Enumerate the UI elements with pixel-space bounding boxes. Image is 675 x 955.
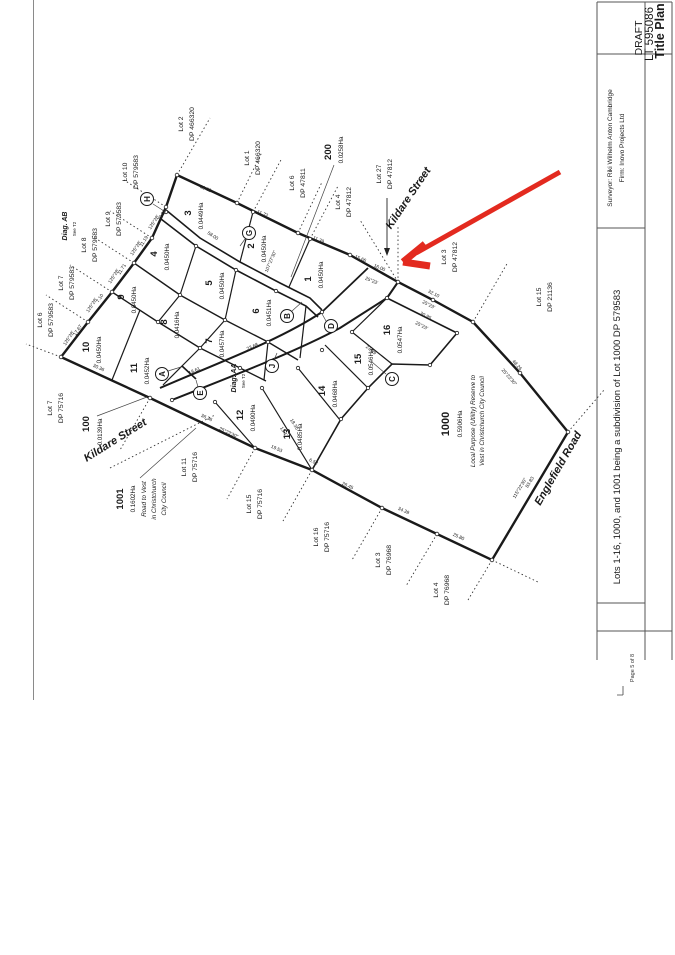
adjoining-dp: DP 75716: [58, 393, 65, 423]
lot-number: 3: [183, 210, 194, 215]
lot-number: 2: [246, 243, 257, 248]
dimension: 19.53: [270, 444, 284, 455]
adjoining-lot: Lot 8: [81, 237, 88, 252]
lot-area: 0.0450Ha: [261, 235, 268, 262]
adjoining-lot: Lot 4: [335, 194, 342, 209]
diag-ab-label: Diag. AB: [62, 212, 69, 241]
parcel-1001-desc: City Council: [161, 482, 168, 516]
adjoining-dp: DP 466320: [255, 141, 262, 175]
parcel-1000-number: 1000: [440, 412, 452, 436]
dimension: 58.00: [206, 230, 220, 242]
dimension: 13.62: [199, 184, 213, 194]
adjoining-lot: Lot 3: [441, 249, 448, 264]
plan-status: DRAFT: [633, 20, 645, 56]
parcel-1001-desc: in Christchurch: [151, 478, 158, 520]
dimension: 115°22'30": [512, 477, 529, 500]
parcel-1001-area: 0.1602Ha: [130, 485, 137, 512]
lot-area: 0.0416Ha: [174, 311, 181, 338]
title-plan-page: 3 0.0449Ha 2 0.0450Ha 1 0.0450Ha 4 0.045…: [0, 0, 675, 955]
lot-area: 0.0451Ha: [266, 299, 273, 326]
surveyor-firm: Firm: Inovo Projects Ltd: [619, 113, 626, 182]
peg-letter: H: [143, 196, 152, 202]
lot-number: 12: [235, 410, 246, 421]
adjoining-dp: DP 579583: [116, 202, 123, 236]
lot-number: 9: [116, 294, 127, 299]
parcel-1001-number: 1001: [115, 488, 126, 510]
fold-mark: [617, 686, 623, 695]
parcel-1001-desc: Road to Vest: [141, 481, 148, 517]
adjoining-lot: Lot 6: [289, 175, 296, 190]
lot-area: 0.0450Ha: [164, 243, 171, 270]
adjoining-lot: Lot 3: [375, 552, 382, 567]
dimension: 25°23': [414, 320, 429, 332]
lot27-pointer-arrowhead: [384, 248, 390, 256]
adjoining-lot-labels: Lot 2 DP 466320 Lot 1 DP 466320 Lot 6 DP…: [37, 107, 554, 605]
adjoining-lot: Lot 16: [313, 527, 320, 546]
dimension: 15.66: [354, 254, 368, 264]
lot-number: 4: [149, 251, 160, 257]
adjoining-lot: Lot 2: [178, 116, 185, 131]
parcel-1000-desc: Local Purpose (Utility) Reserve to: [470, 374, 477, 467]
adjoining-dp: DP 76968: [386, 545, 393, 575]
plan-description: Lots 1-16, 1000, and 1001 being a subdiv…: [612, 290, 623, 585]
dimension: 25°23': [364, 276, 379, 287]
adjoining-dp: DP 466320: [189, 107, 196, 141]
dimension: 18.61: [188, 366, 202, 377]
adjoining-lot: Lot 15: [536, 287, 543, 306]
lot-number: 11: [129, 362, 140, 373]
adjoining-dp: DP 47812: [387, 159, 394, 189]
street-label-kildare-sw: Kildare Street: [82, 416, 150, 465]
dimension: 25°23'30": [500, 368, 518, 388]
lot-number: 10: [81, 342, 92, 353]
red-annotation-arrow: [403, 172, 560, 266]
adjoining-lot: Lot 7: [47, 400, 54, 415]
peg-letter: E: [196, 390, 205, 396]
adjoining-dp: DP 75716: [324, 522, 331, 552]
page-number: Page 5 of 8: [630, 654, 636, 682]
lot-number: 15: [353, 353, 364, 364]
title-block: Title Plan LT 595086 DRAFT Surveyor: Rik…: [597, 2, 672, 695]
adjoining-lot: Lot 11: [181, 458, 188, 477]
lot-area: 0.0450Ha: [219, 272, 226, 299]
lot-number: 8: [159, 319, 170, 324]
surveyor-name: Surveyor: Riki Wilhelm Anton Cambridge: [607, 89, 614, 207]
lot-number: 14: [317, 385, 328, 396]
lot-area: 0.0547Ha: [397, 326, 404, 353]
diag-ab-ref: See T2: [72, 221, 77, 236]
peg-letter: G: [245, 230, 254, 236]
lot-area: 0.0450Ha: [96, 336, 103, 363]
adjoining-lot: Lot 27: [376, 164, 383, 183]
peg-letter: D: [327, 323, 336, 329]
parcel-200-number: 200: [323, 144, 334, 160]
adjoining-dp: DP 75716: [192, 452, 199, 482]
dimension: 23.68: [246, 342, 260, 353]
lot-area: 0.0490Ha: [250, 404, 257, 431]
lot-area: 0.0457Ha: [219, 330, 226, 357]
peg-letter: C: [388, 376, 397, 382]
peg-letter: A: [158, 371, 167, 377]
survey-plan-sheet: 3 0.0449Ha 2 0.0450Ha 1 0.0450Ha 4 0.045…: [0, 0, 675, 955]
lot-number: 6: [251, 308, 262, 313]
lot-number: 16: [382, 325, 393, 336]
peg-letter: J: [268, 364, 277, 368]
adjoining-lot: Lot 4: [433, 582, 440, 597]
adjoining-dp: DP 75716: [257, 489, 264, 519]
adjoining-dp: DP 47812: [346, 187, 353, 217]
parcel-200-area: 0.0258Ha: [338, 136, 345, 163]
lot-area: 0.0452Ha: [144, 357, 151, 384]
adjoining-dp: DP 76968: [444, 575, 451, 605]
adjoining-lot: Lot 7: [58, 275, 65, 290]
adjoining-dp: DP 579583: [133, 155, 140, 189]
lot-number: 5: [204, 280, 215, 286]
adjoining-dp: DP 579583: [48, 303, 55, 337]
lot-area: 0.0450Ha: [131, 286, 138, 313]
adjoining-dp: DP 47812: [452, 242, 459, 272]
parcel-1000-area: 0.5906Ha: [457, 410, 464, 437]
adjoining-lot: Lot 10: [122, 162, 129, 181]
diag-aa-ref: See T2: [241, 373, 246, 388]
lot-area: 0.0450Ha: [318, 261, 325, 288]
adjoining-dp: DP 21136: [547, 282, 554, 312]
street-label-englefield: Englefield Road: [532, 429, 584, 507]
peg-letter: B: [283, 313, 292, 319]
adjoining-dp: DP 579583: [69, 266, 76, 300]
adjoining-dp: DP 579583: [92, 228, 99, 262]
lot-number: 7: [204, 338, 215, 343]
adjoining-lot: Lot 15: [246, 494, 253, 513]
diag-aa-label: Diag. AA: [231, 364, 238, 393]
adjoining-lot: Lot 1: [244, 150, 251, 165]
lot-number: 1: [303, 276, 314, 282]
lot-area: 0.0468Ha: [332, 380, 339, 407]
lot-labels: 3 0.0449Ha 2 0.0450Ha 1 0.0450Ha 4 0.045…: [81, 202, 404, 450]
adjoining-lot: Lot 9: [105, 211, 112, 226]
adjoining-dp: DP 47811: [300, 168, 307, 198]
parcel-100-number: 100: [81, 416, 92, 432]
parcel-1000-desc: Vest in Christchurch City Council: [479, 375, 486, 465]
plan-number: LT 595086: [644, 7, 656, 61]
adjoining-lot: Lot 6: [37, 312, 44, 327]
lot-area: 0.0449Ha: [198, 202, 205, 229]
